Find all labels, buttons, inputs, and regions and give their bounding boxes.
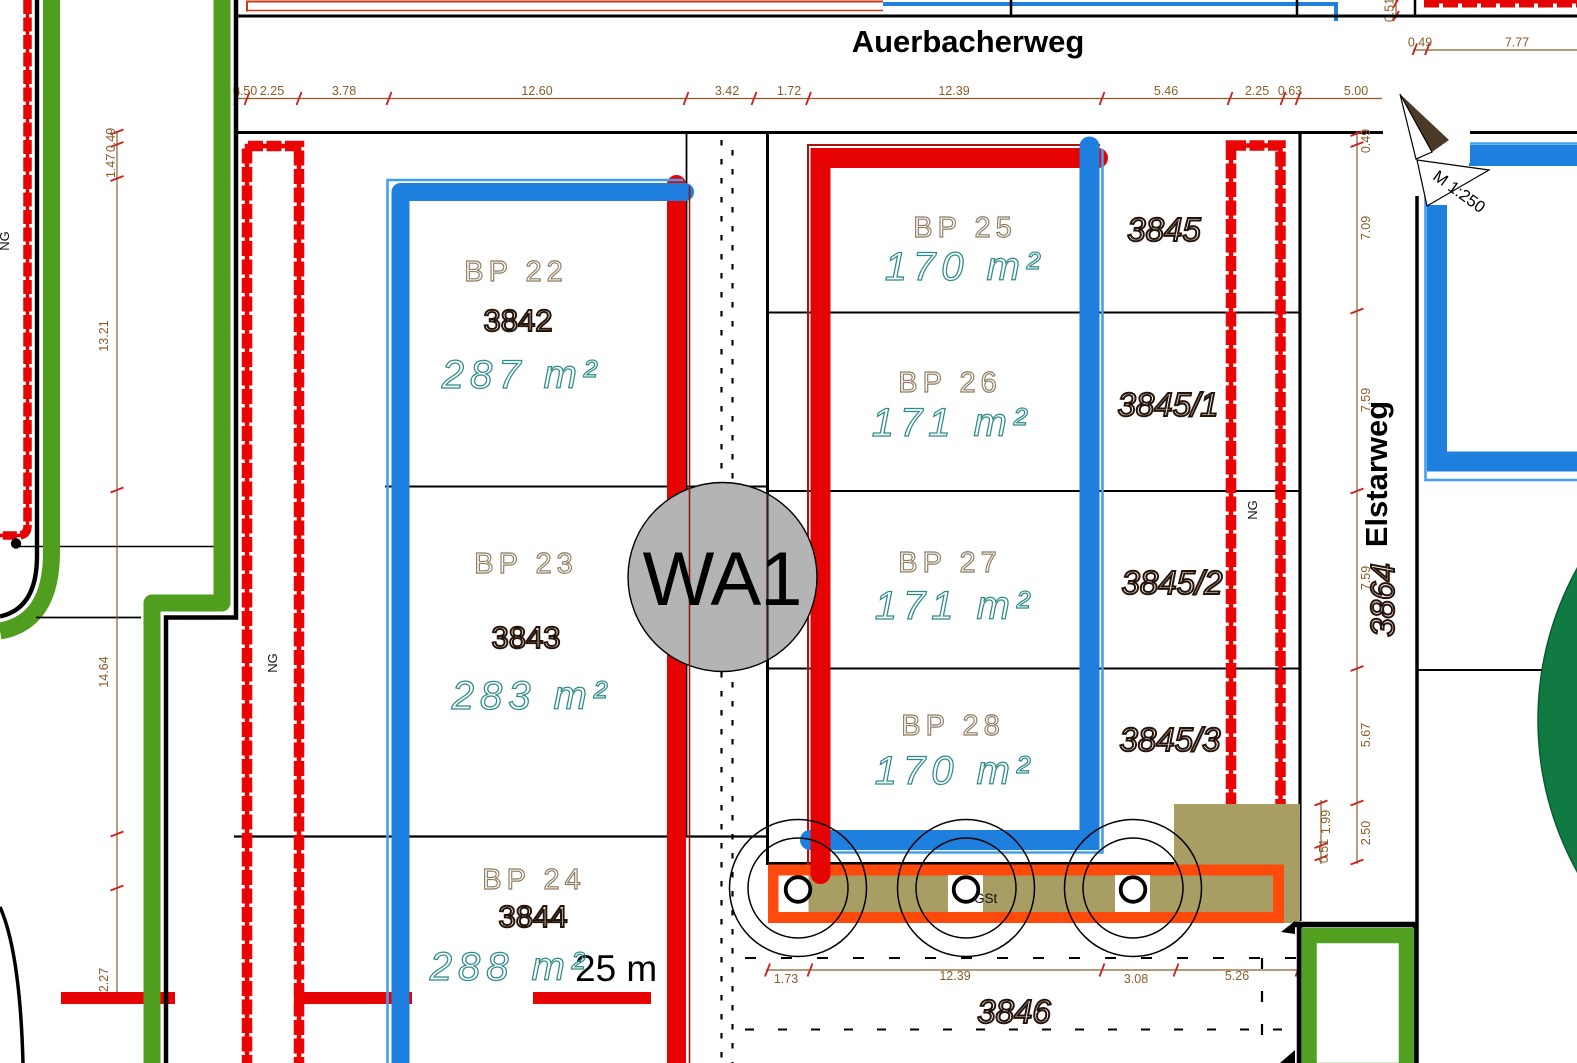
svg-text:GSt: GSt [974, 891, 998, 906]
svg-text:BP 23: BP 23 [474, 548, 577, 580]
svg-text:NG: NG [0, 231, 12, 251]
svg-text:2.25: 2.25 [260, 84, 284, 98]
svg-text:0.49: 0.49 [1359, 129, 1373, 153]
svg-text:3.42: 3.42 [715, 84, 739, 98]
svg-text:BP 25: BP 25 [913, 212, 1016, 244]
svg-text:BP 28: BP 28 [901, 710, 1004, 742]
svg-text:1.99: 1.99 [1319, 810, 1333, 834]
svg-text:170 m²: 170 m² [885, 245, 1046, 289]
svg-text:13.21: 13.21 [97, 320, 111, 351]
svg-text:5.67: 5.67 [1359, 723, 1373, 747]
svg-text:171 m²: 171 m² [875, 584, 1036, 628]
svg-text:3842: 3842 [484, 303, 553, 338]
svg-text:Auerbacherweg: Auerbacherweg [852, 24, 1085, 59]
svg-text:WA1: WA1 [643, 537, 802, 622]
svg-text:7.09: 7.09 [1359, 216, 1373, 240]
svg-text:3.78: 3.78 [332, 84, 356, 98]
svg-text:5.46: 5.46 [1154, 84, 1178, 98]
svg-text:2.25: 2.25 [1245, 84, 1269, 98]
svg-text:283 m²: 283 m² [451, 674, 613, 718]
svg-text:BP 22: BP 22 [464, 256, 567, 288]
svg-text:0.63: 0.63 [1278, 84, 1302, 98]
svg-text:3845: 3845 [1127, 211, 1201, 248]
svg-text:3864: 3864 [1364, 563, 1401, 636]
svg-text:3845/3: 3845/3 [1120, 721, 1222, 758]
svg-text:Elstarweg: Elstarweg [1359, 401, 1394, 547]
svg-text:7.77: 7.77 [1505, 36, 1529, 50]
svg-text:1.73: 1.73 [774, 972, 798, 986]
svg-text:0.51: 0.51 [1317, 839, 1331, 863]
svg-text:171 m²: 171 m² [872, 401, 1033, 445]
svg-text:3.08: 3.08 [1124, 972, 1148, 986]
svg-text:3843: 3843 [492, 620, 561, 655]
svg-text:BP 27: BP 27 [898, 547, 1001, 579]
svg-text:3844: 3844 [499, 899, 568, 934]
svg-text:NG: NG [265, 653, 280, 673]
svg-text:NG: NG [1245, 500, 1260, 520]
svg-text:BP 24: BP 24 [482, 864, 585, 896]
svg-text:2.27: 2.27 [97, 968, 111, 992]
svg-text:3845/2: 3845/2 [1122, 564, 1223, 601]
svg-text:0.51: 0.51 [1382, 0, 1396, 22]
svg-text:288 m²: 288 m² [429, 945, 591, 989]
svg-text:12.39: 12.39 [938, 84, 969, 98]
svg-text:1.72: 1.72 [777, 84, 801, 98]
svg-text:0.49: 0.49 [1408, 36, 1432, 50]
svg-text:12.60: 12.60 [521, 84, 552, 98]
svg-text:3846: 3846 [977, 993, 1051, 1030]
svg-text:12.39: 12.39 [939, 969, 970, 983]
svg-text:5.00: 5.00 [1344, 84, 1368, 98]
svg-text:1.47: 1.47 [104, 154, 118, 178]
svg-text:5.26: 5.26 [1225, 969, 1249, 983]
svg-text:287 m²: 287 m² [441, 353, 603, 397]
svg-text:2.50: 2.50 [1359, 821, 1373, 845]
svg-text:0.49: 0.49 [104, 128, 118, 152]
svg-text:3845/1: 3845/1 [1118, 386, 1219, 423]
svg-text:14.64: 14.64 [97, 656, 111, 687]
svg-text:170 m²: 170 m² [875, 749, 1036, 793]
svg-text:BP 26: BP 26 [898, 367, 1001, 399]
